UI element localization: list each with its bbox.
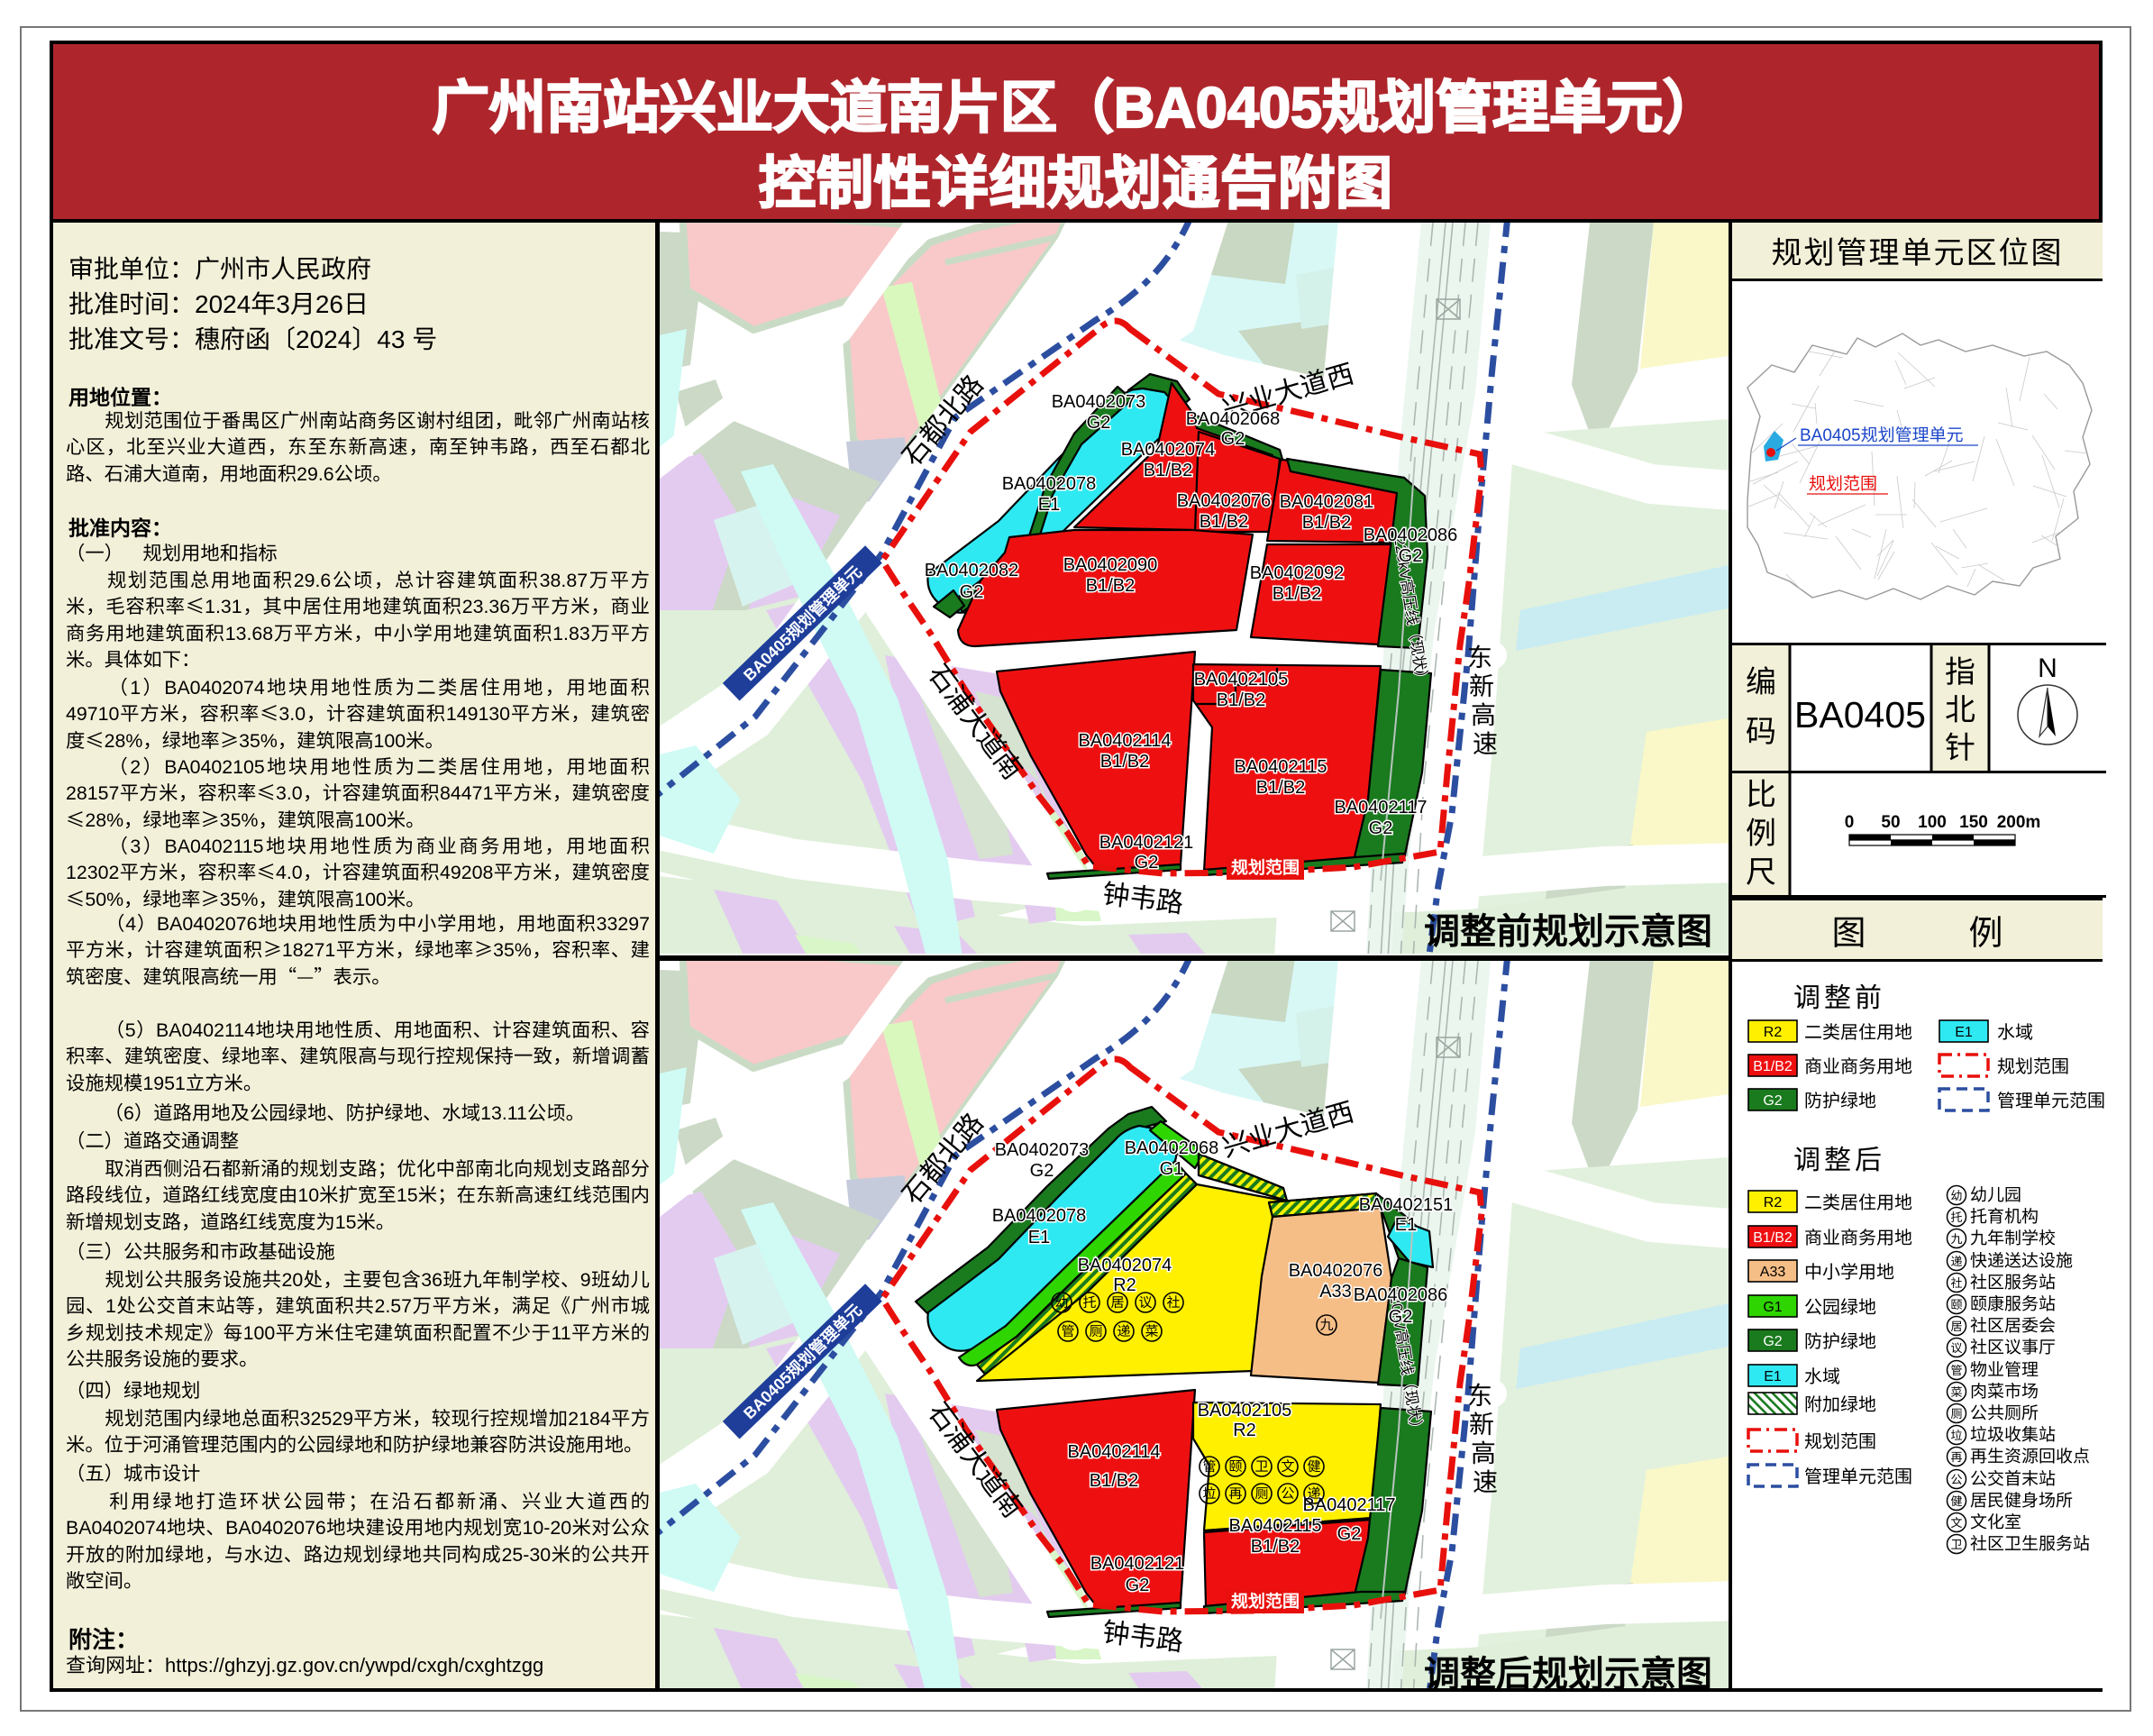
svg-text:E1: E1 (1028, 1222, 1050, 1248)
svg-text:A33: A33 (1760, 1259, 1786, 1281)
svg-text:颐: 颐 (1950, 1295, 1962, 1312)
svg-text:R2: R2 (1233, 1415, 1256, 1441)
svg-text:尺: 尺 (1746, 847, 1776, 891)
svg-text:G2: G2 (1369, 813, 1393, 839)
svg-text:居民健身场所: 居民健身场所 (1970, 1487, 2073, 1512)
svg-text:物业管理: 物业管理 (1970, 1357, 2039, 1381)
svg-text:B1/B2: B1/B2 (1753, 1054, 1793, 1075)
svg-text:B1/B2: B1/B2 (1302, 507, 1351, 534)
svg-text:G2: G2 (960, 577, 984, 603)
svg-text:管: 管 (1950, 1361, 1962, 1378)
svg-text:E1: E1 (1764, 1364, 1782, 1385)
svg-text:健: 健 (1950, 1492, 1962, 1509)
svg-text:150: 150 (1959, 809, 1988, 833)
svg-text:水域: 水域 (1804, 1362, 1840, 1388)
svg-text:九: 九 (1319, 1315, 1333, 1334)
svg-text:G2: G2 (1763, 1329, 1782, 1350)
svg-text:管理单元范围: 管理单元范围 (1997, 1086, 2105, 1112)
svg-text:商业商务用地: 商业商务用地 (1804, 1223, 1912, 1249)
svg-text:管理单元范围: 管理单元范围 (1804, 1462, 1912, 1488)
svg-text:B1/B2: B1/B2 (1100, 746, 1149, 772)
svg-text:G2: G2 (1030, 1156, 1054, 1182)
svg-text:调整后规划示意图: 调整后规划示意图 (1424, 1645, 1712, 1688)
svg-text:防护绿地: 防护绿地 (1804, 1327, 1876, 1353)
svg-text:G2: G2 (1126, 1570, 1150, 1596)
svg-text:BA0402114: BA0402114 (1067, 1437, 1160, 1463)
svg-text:附加绿地: 附加绿地 (1804, 1390, 1876, 1416)
svg-text:G2: G2 (1221, 424, 1245, 450)
svg-text:0: 0 (1845, 809, 1855, 833)
svg-text:文: 文 (1281, 1457, 1294, 1476)
svg-text:社区居委会: 社区居委会 (1970, 1312, 2056, 1337)
svg-text:递: 递 (1950, 1252, 1962, 1269)
svg-text:文化室: 文化室 (1970, 1509, 2021, 1533)
svg-text:再: 再 (1950, 1448, 1962, 1465)
svg-text:B1/B2: B1/B2 (1256, 772, 1305, 799)
svg-text:B1/B2: B1/B2 (1144, 455, 1192, 481)
svg-text:公: 公 (1281, 1484, 1294, 1503)
svg-text:调整后: 调整后 (1793, 1138, 1885, 1177)
svg-text:垃圾收集站: 垃圾收集站 (1970, 1421, 2056, 1446)
svg-text:100: 100 (1918, 809, 1947, 833)
svg-text:200m: 200m (1997, 809, 2041, 833)
svg-text:中小学用地: 中小学用地 (1804, 1257, 1894, 1284)
svg-text:社区服务站: 社区服务站 (1970, 1269, 2056, 1293)
svg-text:卫: 卫 (1950, 1535, 1962, 1552)
svg-text:卫: 卫 (1254, 1457, 1268, 1476)
svg-text:G2: G2 (1399, 541, 1423, 567)
svg-text:管: 管 (1061, 1321, 1074, 1340)
svg-text:规划范围: 规划范围 (1804, 1427, 1876, 1453)
svg-text:BA0405规划管理单元: BA0405规划管理单元 (1800, 422, 1964, 446)
svg-text:垃: 垃 (1950, 1426, 1962, 1443)
svg-text:社: 社 (1166, 1293, 1180, 1311)
svg-text:G2: G2 (1389, 1302, 1413, 1328)
svg-text:九年制学校: 九年制学校 (1970, 1225, 2056, 1249)
svg-text:肉菜市场: 肉菜市场 (1970, 1378, 2039, 1403)
svg-text:码: 码 (1746, 707, 1776, 751)
svg-text:编: 编 (1746, 657, 1776, 701)
svg-text:B1/B2: B1/B2 (1273, 579, 1321, 605)
svg-text:公园绿地: 公园绿地 (1804, 1293, 1876, 1319)
svg-text:快递送达设施: 快递送达设施 (1970, 1247, 2073, 1272)
svg-text:公交首末站: 公交首末站 (1970, 1466, 2056, 1490)
svg-text:规划范围: 规划范围 (1809, 471, 1877, 495)
svg-text:幼: 幼 (1950, 1186, 1962, 1203)
svg-text:N: N (2038, 645, 2057, 685)
svg-text:G2: G2 (1135, 847, 1159, 873)
svg-text:居: 居 (1110, 1293, 1124, 1311)
svg-text:商业商务用地: 商业商务用地 (1804, 1052, 1912, 1078)
svg-text:E1: E1 (1955, 1019, 1973, 1041)
svg-text:托育机构: 托育机构 (1970, 1203, 2039, 1228)
svg-text:B1/B2: B1/B2 (1200, 507, 1248, 533)
svg-text:菜: 菜 (1145, 1321, 1158, 1340)
svg-text:社区卫生服务站: 社区卫生服务站 (1970, 1530, 2090, 1555)
svg-text:调整前: 调整前 (1793, 975, 1885, 1015)
svg-text:议: 议 (1138, 1293, 1152, 1311)
svg-text:再生资源回收点: 再生资源回收点 (1970, 1443, 2090, 1467)
svg-text:厕: 厕 (1950, 1404, 1962, 1421)
svg-text:E1: E1 (1395, 1210, 1417, 1236)
svg-text:健: 健 (1307, 1457, 1320, 1476)
svg-text:R2: R2 (1764, 1019, 1783, 1041)
svg-text:G1: G1 (1763, 1294, 1782, 1316)
svg-text:幼: 幼 (1054, 1293, 1068, 1311)
svg-text:颐康服务站: 颐康服务站 (1970, 1291, 2056, 1315)
svg-text:二类居住用地: 二类居住用地 (1804, 1018, 1912, 1044)
svg-text:公: 公 (1950, 1470, 1962, 1487)
svg-text:再: 再 (1228, 1484, 1242, 1503)
svg-text:递: 递 (1117, 1321, 1130, 1340)
svg-text:G2: G2 (1763, 1088, 1782, 1110)
svg-text:托: 托 (1950, 1208, 1962, 1225)
svg-text:E1: E1 (1038, 489, 1060, 516)
svg-text:厕: 厕 (1254, 1484, 1268, 1503)
svg-text:九: 九 (1950, 1229, 1962, 1247)
svg-text:社区议事厅: 社区议事厅 (1970, 1334, 2056, 1358)
svg-text:递: 递 (1307, 1484, 1320, 1503)
svg-text:G1: G1 (1160, 1154, 1184, 1180)
svg-text:G2: G2 (1337, 1519, 1362, 1545)
svg-text:菜: 菜 (1950, 1383, 1962, 1400)
svg-text:调整前规划示意图: 调整前规划示意图 (1424, 902, 1712, 954)
svg-text:二类居住用地: 二类居住用地 (1804, 1188, 1912, 1214)
svg-text:托: 托 (1082, 1293, 1096, 1311)
svg-text:文: 文 (1950, 1513, 1962, 1530)
svg-text:R2: R2 (1764, 1190, 1783, 1211)
svg-text:管: 管 (1202, 1457, 1216, 1476)
svg-text:规划范围: 规划范围 (1231, 1588, 1300, 1613)
svg-text:例: 例 (1746, 809, 1776, 853)
svg-text:防护绿地: 防护绿地 (1804, 1086, 1876, 1112)
svg-text:BA0405: BA0405 (1794, 684, 1926, 738)
svg-text:B1/B2: B1/B2 (1086, 571, 1135, 597)
svg-text:G2: G2 (1087, 407, 1111, 434)
svg-text:议: 议 (1950, 1339, 1962, 1356)
svg-text:B1/B2: B1/B2 (1753, 1225, 1793, 1247)
svg-text:A33: A33 (1319, 1276, 1352, 1302)
svg-text:水域: 水域 (1997, 1018, 2033, 1044)
svg-text:规划范围: 规划范围 (1231, 854, 1300, 879)
svg-text:针: 针 (1945, 723, 1975, 767)
svg-text:厕: 厕 (1089, 1321, 1102, 1340)
svg-text:规划范围: 规划范围 (1997, 1052, 2069, 1078)
svg-text:社: 社 (1950, 1274, 1962, 1291)
svg-text:垃: 垃 (1202, 1484, 1216, 1503)
svg-text:公共厕所: 公共厕所 (1970, 1400, 2039, 1424)
svg-text:B1/B2: B1/B2 (1217, 685, 1265, 711)
svg-text:B1/B2: B1/B2 (1090, 1466, 1138, 1492)
svg-text:B1/B2: B1/B2 (1251, 1531, 1300, 1558)
svg-text:颐: 颐 (1228, 1457, 1242, 1476)
svg-text:50: 50 (1881, 809, 1900, 833)
svg-text:幼儿园: 幼儿园 (1970, 1182, 2021, 1206)
svg-text:居: 居 (1950, 1317, 1962, 1334)
